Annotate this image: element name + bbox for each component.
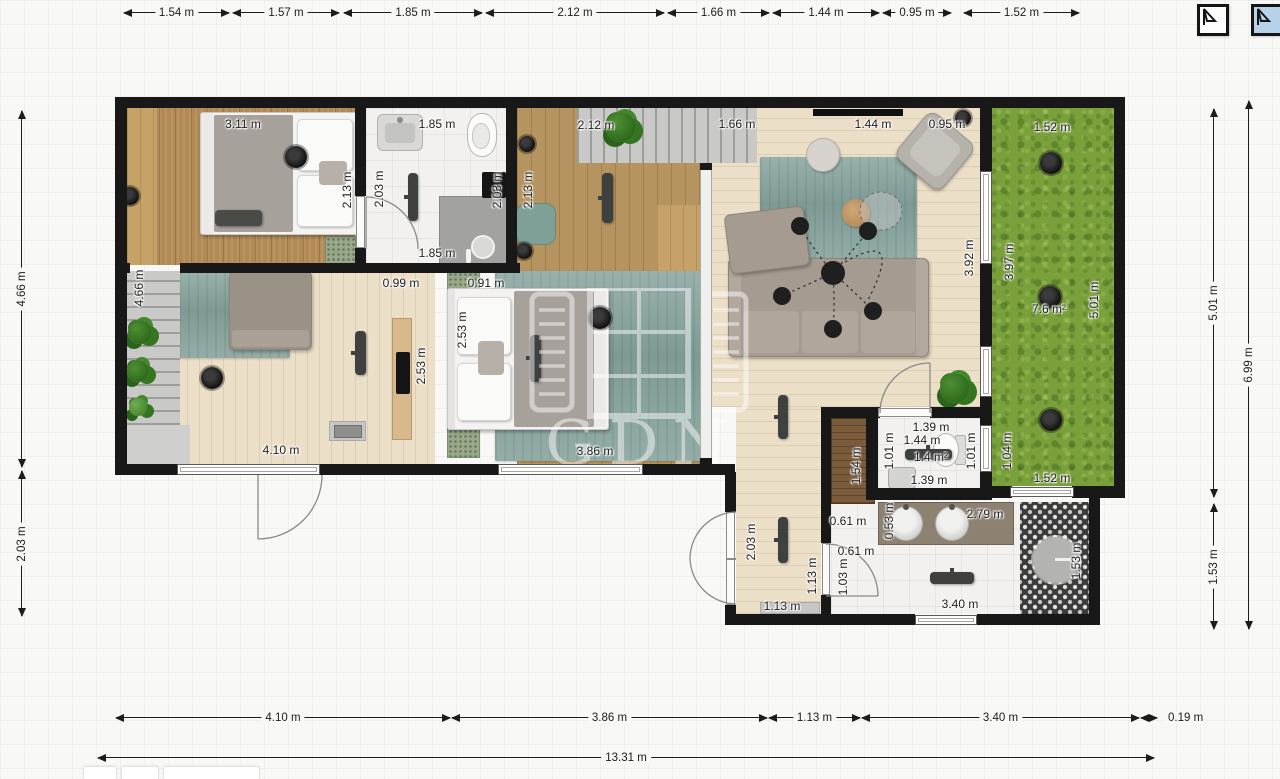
sofa-chaise[interactable] <box>724 205 811 274</box>
floor-plan-icon <box>1200 7 1220 27</box>
sofa-cushion-1 <box>743 311 799 353</box>
sofa-living-left[interactable] <box>229 271 312 350</box>
wall-wc-top-b[interactable] <box>930 407 980 418</box>
measurement-label: 1.13 m <box>764 599 801 613</box>
doormat-living[interactable] <box>329 421 366 441</box>
measurement-label: 1.04 m <box>1000 433 1014 470</box>
measurement-label: 2.79 m <box>967 507 1004 521</box>
radiator-hall-top[interactable] <box>778 395 788 439</box>
partition-cap-bottom <box>700 458 712 464</box>
ceiling-lamp-living-left[interactable] <box>201 367 223 389</box>
bed2-cushion <box>478 341 504 375</box>
wall-garden-right[interactable] <box>1114 97 1125 497</box>
sink1-faucet <box>397 117 403 123</box>
ceiling-lamp-bedroom2[interactable] <box>589 307 611 329</box>
dimension-label: 1.13 m <box>793 712 836 724</box>
wall-garden-left-a[interactable] <box>980 97 992 173</box>
dimension-label: 0.95 m <box>895 7 938 19</box>
dimension-line: 2.03 m <box>15 470 28 617</box>
measurement-label: 7.6 m² <box>1032 302 1066 316</box>
measurement-label: 0.99 m <box>383 276 420 290</box>
measurement-label: 2.53 m <box>455 312 469 349</box>
shower1-handle <box>466 249 471 263</box>
partition-cap-top <box>700 163 712 170</box>
dimension-line: 3.40 m <box>861 711 1140 724</box>
toolbar-stub-button-2[interactable] <box>121 766 159 779</box>
window-bedroom2[interactable] <box>498 464 643 475</box>
radiator-living-left[interactable] <box>355 331 366 375</box>
plant-living-2[interactable] <box>127 360 149 382</box>
window-living-left[interactable] <box>177 464 320 475</box>
floor-planner-app: { "app": { "watermark_text": "GDN", "flo… <box>0 0 1280 777</box>
dimension-line: 1.53 m <box>1207 503 1220 630</box>
partition-living-bedroom2[interactable] <box>700 163 712 464</box>
plant-living-3[interactable] <box>129 398 147 416</box>
radiator-bathroom1[interactable] <box>408 173 418 221</box>
shoe-tray <box>334 425 362 438</box>
measurement-label: 1.39 m <box>913 420 950 434</box>
coffee-table-wood[interactable] <box>842 199 870 227</box>
radiator-bathroom2[interactable] <box>930 572 974 584</box>
faucet-right <box>949 504 955 510</box>
wall-left[interactable] <box>115 97 127 475</box>
dimension-line: 1.54 m <box>123 6 230 19</box>
toolbar-stub-button-3[interactable] <box>163 766 260 779</box>
sofa-cushion-2 <box>802 311 858 353</box>
measurement-label: 2.03 m <box>372 171 386 208</box>
door-arc-living-exit <box>258 475 322 539</box>
dimension-line: 3.86 m <box>451 711 768 724</box>
toolbar-stub-button-1[interactable] <box>83 766 117 779</box>
mat-bedroom2-bottom[interactable] <box>447 428 480 458</box>
dimension-label: 5.01 m <box>1208 281 1220 324</box>
stairs-landing <box>127 425 190 464</box>
dimension-label: 1.85 m <box>391 7 434 19</box>
bed2-headboard <box>448 289 455 429</box>
measurement-label: 1.39 m <box>911 473 948 487</box>
mat-bedroom1[interactable] <box>325 236 356 264</box>
dimension-line: 1.66 m <box>667 6 770 19</box>
wall-bottom-b[interactable] <box>977 614 1100 625</box>
door-bathroom2[interactable] <box>822 543 830 595</box>
wall-top[interactable] <box>115 97 1125 108</box>
radiator-bedroom2-top[interactable] <box>602 173 613 223</box>
measurement-label: 4.66 m <box>132 270 146 307</box>
measurement-label: 1.85 m <box>419 117 456 131</box>
dimension-line: 4.10 m <box>115 711 451 724</box>
wall-bath-bed2[interactable] <box>506 97 517 273</box>
shower1-head <box>471 235 495 259</box>
window-living-garden-1[interactable] <box>980 171 992 264</box>
wall-hall-left-b[interactable] <box>725 605 736 614</box>
measurement-label: 1.52 m <box>1034 120 1071 134</box>
ceiling-lamp-bedroom1[interactable] <box>285 146 307 168</box>
wall-wc-bottom[interactable] <box>866 488 992 500</box>
measurement-label: 3.86 m <box>577 444 614 458</box>
measurement-label: 3.11 m <box>225 117 261 131</box>
measurement-label: 0.61 m <box>838 544 875 558</box>
bed1-bench[interactable] <box>215 210 262 226</box>
armchair-bedroom2[interactable] <box>516 203 556 245</box>
window-living-garden-2[interactable] <box>980 346 992 397</box>
sink-bathroom1[interactable] <box>377 114 423 151</box>
measurement-label: 1.52 m <box>1034 471 1071 485</box>
radiator-hall-bottom[interactable] <box>778 517 788 563</box>
floor-plan-icon-active <box>1254 7 1274 27</box>
measurement-label: 1.03 m <box>836 559 850 596</box>
toilet-bathroom1[interactable] <box>467 113 497 157</box>
ceiling-lamp-bedroom2-top[interactable] <box>519 136 535 152</box>
dimension-line: 1.52 m <box>963 6 1080 19</box>
garden-lamp-3[interactable] <box>1040 409 1062 431</box>
measurement-label: 1.4 m² <box>914 450 948 464</box>
dimension-label: 4.66 m <box>16 267 28 310</box>
dimension-line: 1.44 m <box>772 6 880 19</box>
wall-mid-a[interactable] <box>115 263 130 273</box>
measurement-label: 1.85 m <box>419 246 456 260</box>
dimension-line: 1.57 m <box>232 6 340 19</box>
dimension-label: 3.40 m <box>979 712 1022 724</box>
measurement-label: 3.92 m <box>962 240 976 277</box>
window-garden-bath[interactable] <box>1010 487 1074 497</box>
wall-bottom-left-c[interactable] <box>643 464 735 475</box>
dimension-label: 13.31 m <box>601 752 651 764</box>
door-bathroom1[interactable] <box>356 196 365 248</box>
dimension-line: 1.85 m <box>343 6 483 19</box>
measurement-label: 1.44 m <box>855 117 892 131</box>
wall-hall-right-b[interactable] <box>821 595 831 614</box>
measurement-label: 0.53 m <box>882 503 896 540</box>
dimension-line: 2.12 m <box>485 6 665 19</box>
sofa-arm-right <box>916 259 928 356</box>
sofa-left-seat <box>232 330 309 347</box>
measurement-label: 3.97 m <box>1002 244 1016 281</box>
sofa-living[interactable] <box>728 258 929 357</box>
floor-tab-1-button[interactable] <box>1197 4 1229 36</box>
dimension-label: 4.10 m <box>261 712 304 724</box>
dimension-line: 0.19 m <box>1140 711 1158 724</box>
wall-garden-left-c[interactable] <box>980 395 992 427</box>
dimension-label: 1.52 m <box>1000 7 1043 19</box>
sink1-basin <box>385 123 415 143</box>
tv-living-left[interactable] <box>396 352 410 394</box>
garden-lamp-1[interactable] <box>1040 152 1062 174</box>
wall-hall-left-a[interactable] <box>725 472 736 512</box>
dimension-label: 1.44 m <box>804 7 847 19</box>
wall-wc-left[interactable] <box>866 407 878 500</box>
measurement-label: 1.01 m <box>964 433 978 470</box>
door-leaf-split <box>727 558 736 560</box>
dimension-line: 4.66 m <box>15 110 28 468</box>
measurement-label: 1.01 m <box>882 433 896 470</box>
wall-bottom-a[interactable] <box>725 614 915 625</box>
measurement-label: 4.10 m <box>263 443 300 457</box>
wall-bottom-left-a[interactable] <box>115 464 177 475</box>
wall-bed1-bath-a[interactable] <box>355 97 366 196</box>
wall-garden-left-b[interactable] <box>980 262 992 348</box>
dimension-label: 0.19 m <box>1164 712 1207 724</box>
dimension-label: 1.66 m <box>697 7 740 19</box>
sofa-cushion-3 <box>861 311 915 353</box>
measurement-label: 3.40 m <box>942 597 979 611</box>
measurement-label: 1.44 m <box>904 433 941 447</box>
dimension-line: 0.95 m <box>882 6 952 19</box>
measurement-label: 0.95 m <box>929 117 966 131</box>
bed1-sheet-fold <box>201 113 214 234</box>
door-wc[interactable] <box>878 408 932 417</box>
toilet1-seat <box>472 123 490 149</box>
measurement-label: 2.03 m <box>744 524 758 561</box>
radiator-bedroom2[interactable] <box>530 335 541 382</box>
dimension-label: 3.86 m <box>588 712 631 724</box>
dimension-line: 6.99 m <box>1242 100 1255 630</box>
measurement-label: 2.12 m <box>578 118 615 132</box>
plant-living-room[interactable] <box>940 373 970 403</box>
tv-wall-living[interactable] <box>813 109 903 116</box>
window-wc-garden[interactable] <box>980 425 992 472</box>
dimension-label: 1.54 m <box>155 7 198 19</box>
floor-tab-2-button[interactable] <box>1251 4 1280 36</box>
measurement-label: 1.13 m <box>805 558 819 595</box>
measurement-label: 2.53 m <box>414 348 428 385</box>
ceiling-lamp-bedroom2-mid[interactable] <box>516 243 532 259</box>
window-bathroom2[interactable] <box>915 615 977 625</box>
measurement-label: 1.54 m <box>849 448 863 485</box>
measurement-label: 0.91 m <box>468 276 505 290</box>
wall-bath-right[interactable] <box>1089 486 1100 625</box>
dimension-label: 2.12 m <box>553 7 596 19</box>
dimension-line: 13.31 m <box>97 751 1155 764</box>
wall-bottom-left-b[interactable] <box>320 464 498 475</box>
measurement-label: 1.53 m <box>1069 543 1083 580</box>
wall-mid-b[interactable] <box>180 263 520 273</box>
dimension-line: 5.01 m <box>1207 108 1220 498</box>
dimension-label: 1.57 m <box>264 7 307 19</box>
dimension-label: 2.03 m <box>16 522 28 565</box>
plant-living-1[interactable] <box>128 320 152 344</box>
dimension-label: 6.99 m <box>1243 343 1255 386</box>
vanity-sink-right <box>935 506 969 541</box>
dimension-line: 1.13 m <box>768 711 861 724</box>
armchair-seat <box>907 123 963 179</box>
measurement-label: 2.03 m <box>490 172 504 209</box>
entry-double-door[interactable] <box>726 512 735 605</box>
measurement-label: 5.01 m <box>1087 282 1101 319</box>
measurement-label: 1.66 m <box>719 117 756 131</box>
pouf[interactable] <box>806 138 840 172</box>
measurement-label: 2.13 m <box>521 172 535 209</box>
faucet-left <box>903 504 909 510</box>
dimension-label: 1.53 m <box>1208 545 1220 588</box>
measurement-label: 2.13 m <box>340 172 354 209</box>
measurement-label: 0.61 m <box>830 514 867 528</box>
